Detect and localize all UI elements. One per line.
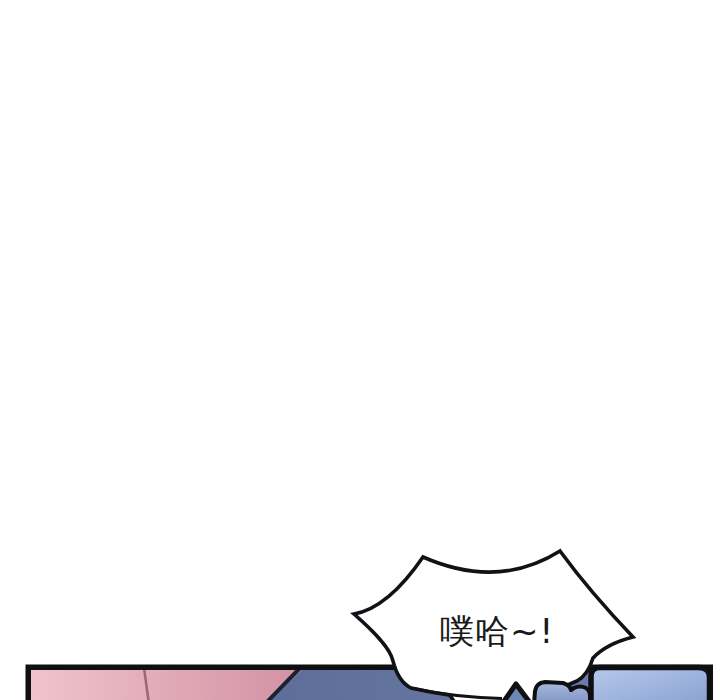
hand-object xyxy=(534,682,590,700)
page-background xyxy=(0,0,720,700)
speech-bubble-text: 噗哈~! xyxy=(440,611,554,651)
pink-figure-area xyxy=(30,668,304,700)
blue-object xyxy=(591,668,710,700)
comic-page[interactable]: 噗哈~! xyxy=(0,0,720,700)
comic-artwork: 噗哈~! xyxy=(0,0,720,700)
